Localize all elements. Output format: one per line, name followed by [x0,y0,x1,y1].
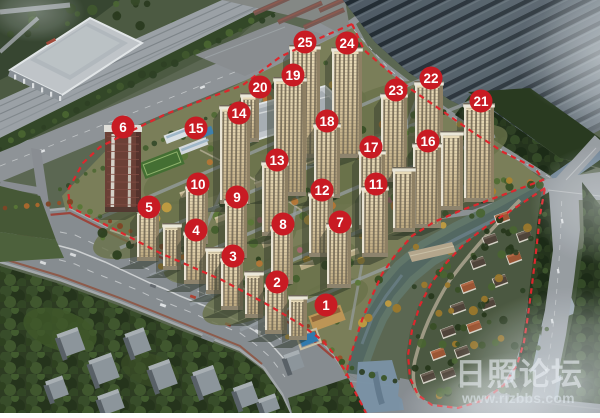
svg-text:9: 9 [233,190,241,205]
svg-text:4: 4 [192,223,200,238]
svg-text:15: 15 [188,121,204,136]
svg-text:14: 14 [231,106,247,121]
svg-text:12: 12 [314,183,329,198]
svg-text:5: 5 [145,200,153,215]
svg-text:13: 13 [269,153,285,168]
svg-text:日照论坛: 日照论坛 [455,357,583,392]
svg-text:19: 19 [285,68,300,83]
svg-text:2: 2 [273,275,281,290]
svg-text:21: 21 [473,94,489,109]
svg-text:www.rizbbs.com: www.rizbbs.com [461,390,575,406]
svg-text:16: 16 [420,134,436,149]
svg-text:20: 20 [252,80,267,95]
svg-text:6: 6 [119,120,127,135]
svg-text:7: 7 [336,215,344,230]
svg-text:1: 1 [322,298,330,313]
svg-text:23: 23 [388,83,404,98]
svg-text:3: 3 [229,249,237,264]
svg-text:24: 24 [339,36,355,51]
svg-text:10: 10 [190,177,205,192]
svg-text:11: 11 [369,177,384,192]
svg-text:17: 17 [363,140,378,155]
svg-text:22: 22 [423,71,438,86]
svg-text:8: 8 [279,217,287,232]
svg-text:18: 18 [319,114,335,129]
svg-text:25: 25 [297,35,313,50]
